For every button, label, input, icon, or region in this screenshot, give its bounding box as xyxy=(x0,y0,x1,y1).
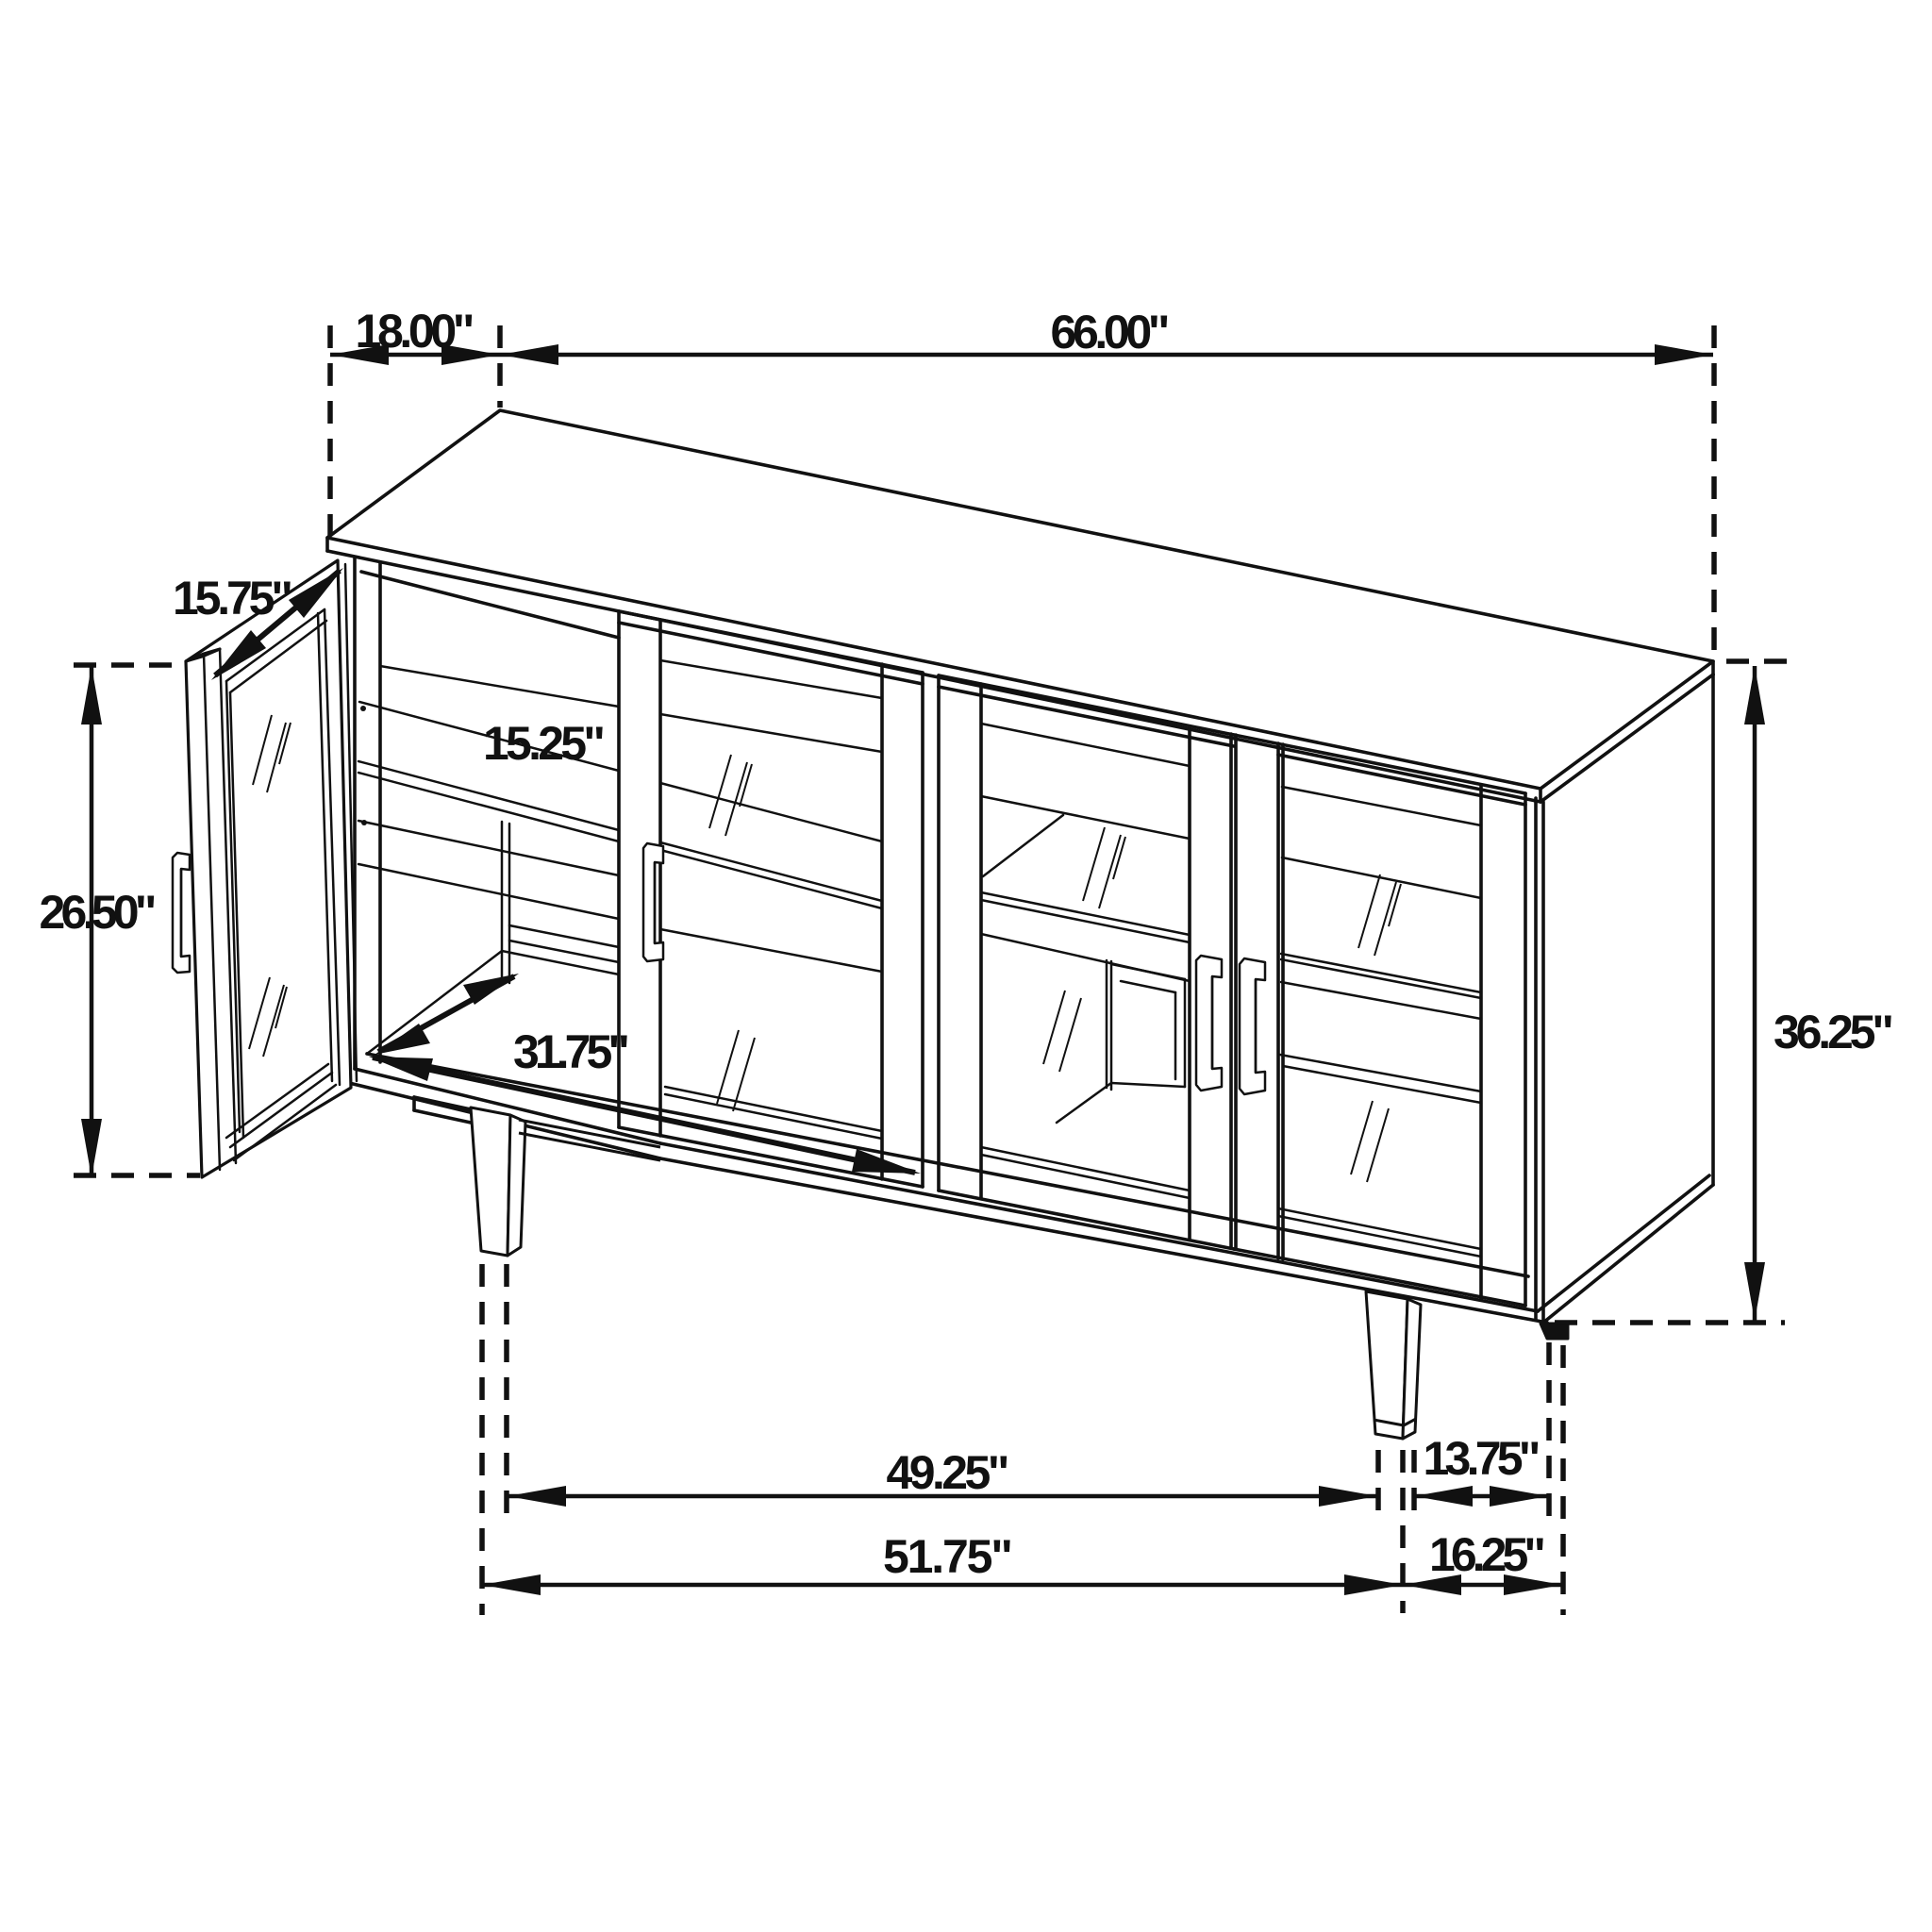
svg-text:36.25": 36.25" xyxy=(1774,1006,1894,1058)
svg-text:13.75": 13.75" xyxy=(1424,1432,1541,1485)
svg-text:16.25": 16.25" xyxy=(1429,1528,1546,1581)
svg-text:15.75": 15.75" xyxy=(173,572,293,625)
svg-text:26.50": 26.50" xyxy=(40,886,158,939)
svg-text:18.00": 18.00" xyxy=(356,305,475,358)
svg-text:49.25": 49.25" xyxy=(887,1446,1010,1499)
svg-text:66.00": 66.00" xyxy=(1051,306,1171,358)
svg-text:15.25": 15.25" xyxy=(483,717,606,770)
svg-text:31.75": 31.75" xyxy=(513,1025,630,1078)
svg-text:51.75": 51.75" xyxy=(883,1530,1013,1583)
